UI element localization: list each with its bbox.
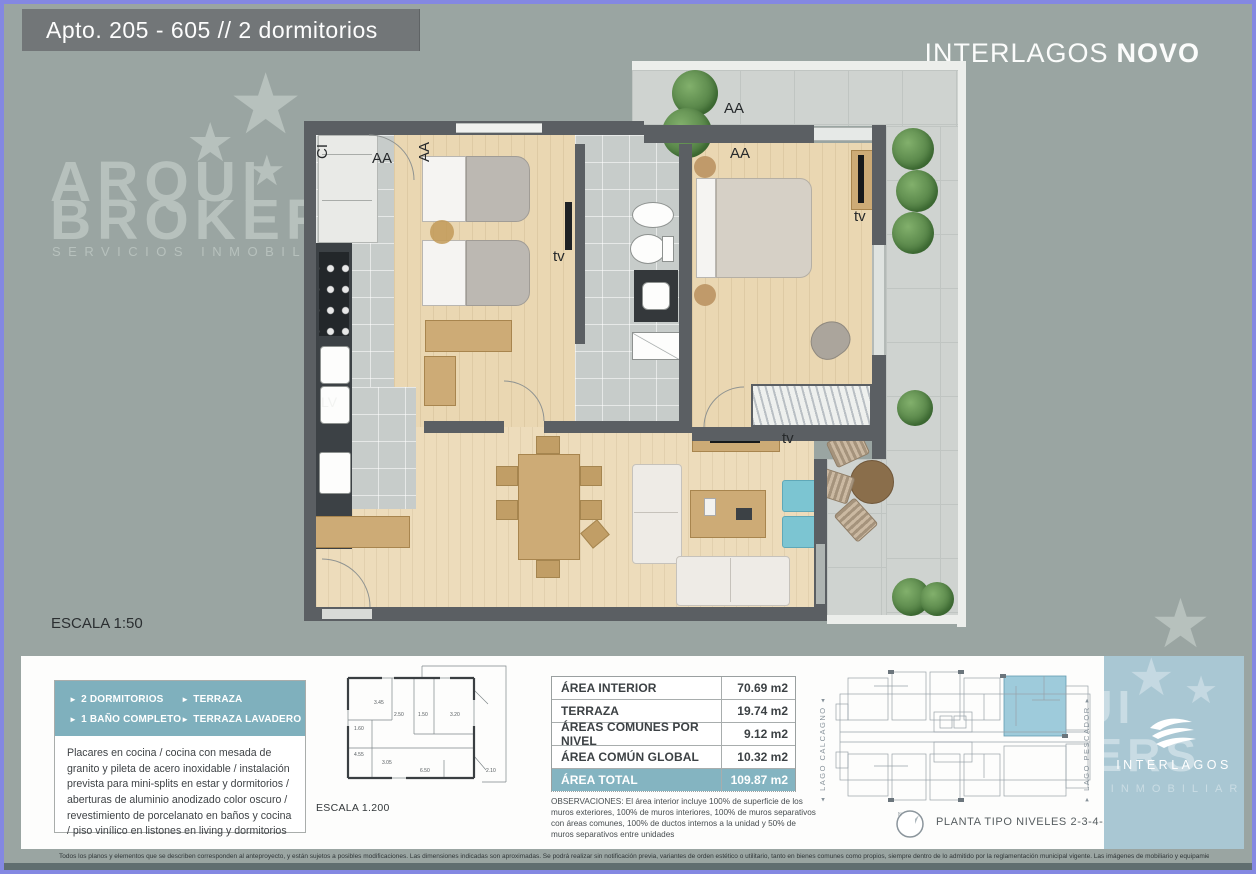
feature-label: 2 DORMITORIOS xyxy=(81,694,163,705)
table-row: ÁREA COMÚN GLOBAL 10.32 m2 xyxy=(552,746,795,769)
arrow-bullet-icon: ► xyxy=(181,715,189,724)
bottom-bar xyxy=(4,863,1252,870)
dim-label: 3.05 xyxy=(382,760,392,766)
arrow-icon: ▼ xyxy=(1084,696,1090,704)
lago-label-text: LAGO CALCAGNO xyxy=(818,707,827,792)
apartment-title-bar: Apto. 205 - 605 // 2 dormitorios xyxy=(22,9,420,51)
label-tv: tv xyxy=(782,430,794,447)
features-header: ►2 DORMITORIOS ►TERRAZA ►1 BAÑO COMPLETO… xyxy=(55,681,305,736)
feature-label: TERRAZA LAVADERO xyxy=(193,714,301,725)
table-row: ÁREA INTERIOR 70.69 m2 xyxy=(552,677,795,700)
site-plan-caption: PLANTA TIPO NIVELES 2-3-4-5-6 xyxy=(936,816,1121,828)
star-icon: ★ xyxy=(1184,672,1218,710)
area-label: ÁREA INTERIOR xyxy=(552,681,721,695)
site-plan xyxy=(834,666,1096,806)
dim-label: 1.60 xyxy=(354,726,364,732)
observations-text: OBSERVACIONES: El área interior incluye … xyxy=(551,796,817,840)
dim-label: 2.10 xyxy=(486,768,496,774)
area-table: ÁREA INTERIOR 70.69 m2 TERRAZA 19.74 m2 … xyxy=(551,676,796,792)
plant xyxy=(892,212,934,254)
plant xyxy=(892,128,934,170)
label-lv: LV xyxy=(321,394,337,410)
label-aa: AA xyxy=(416,142,433,162)
main-plan-scale: ESCALA 1:50 xyxy=(51,615,143,632)
feature-item: ►TERRAZA LAVADERO xyxy=(181,714,301,725)
arrow-icon: ▲ xyxy=(820,795,826,803)
label-tv: tv xyxy=(854,208,866,225)
interlagos-logo-text: INTERLAGOS xyxy=(1104,758,1244,772)
arrow-icon: ▼ xyxy=(1084,795,1090,803)
area-total-label: ÁREA TOTAL xyxy=(552,773,721,787)
arrow-bullet-icon: ► xyxy=(69,715,77,724)
dim-label: 3.45 xyxy=(374,700,384,706)
area-total-value: 109.87 m2 xyxy=(721,769,795,791)
star-icon: ★ xyxy=(1150,590,1211,658)
area-label: ÁREA COMÚN GLOBAL xyxy=(552,750,721,764)
brochure-page: Apto. 205 - 605 // 2 dormitorios INTERLA… xyxy=(0,0,1256,874)
label-aa: AA xyxy=(372,150,392,167)
interlagos-wave-icon xyxy=(1146,714,1198,752)
label-aa: AA xyxy=(724,100,744,117)
area-label: ÁREAS COMUNES POR NIVEL xyxy=(552,720,721,748)
area-value: 9.12 m2 xyxy=(721,723,795,745)
dim-label: 1.50 xyxy=(418,712,428,718)
interlagos-block: ARQUI BROKERS SERVICIOS INMOBILIARIOS ★ … xyxy=(1104,656,1244,849)
lago-calcagno-label: ▲ LAGO CALCAGNO ▲ xyxy=(818,694,827,804)
mini-plan-scale: ESCALA 1.200 xyxy=(316,802,390,814)
star-icon: ★ xyxy=(228,62,303,146)
terrace-parapet-top xyxy=(632,61,966,70)
door-arcs xyxy=(304,121,886,621)
features-description: Placares en cocina / cocina con mesada d… xyxy=(55,736,305,850)
lago-pescador-label: ▼ LAGO PESCADOR ▼ xyxy=(1082,694,1091,804)
mini-plan: 3.45 2.50 1.50 3.20 1.60 4.55 3.05 6.50 … xyxy=(322,660,514,800)
label-tv: tv xyxy=(553,248,565,265)
svg-text:N: N xyxy=(898,812,902,818)
star-icon: ★ xyxy=(1128,656,1175,704)
dim-label: 3.20 xyxy=(450,712,460,718)
table-row: ÁREAS COMUNES POR NIVEL 9.12 m2 xyxy=(552,723,795,746)
terrace-parapet-right xyxy=(957,61,966,627)
table-total-row: ÁREA TOTAL 109.87 m2 xyxy=(552,769,795,791)
features-box: ►2 DORMITORIOS ►TERRAZA ►1 BAÑO COMPLETO… xyxy=(54,680,306,833)
arrow-icon: ▲ xyxy=(820,696,826,704)
feature-item: ►TERRAZA xyxy=(181,694,301,705)
brand-suffix: NOVO xyxy=(1116,38,1200,68)
feature-item: ►2 DORMITORIOS xyxy=(69,694,181,705)
area-value: 19.74 m2 xyxy=(721,700,795,722)
area-label: TERRAZA xyxy=(552,704,721,718)
compass-icon: N xyxy=(894,808,926,840)
dim-label: 4.55 xyxy=(354,752,364,758)
label-aa: AA xyxy=(730,145,750,162)
lago-label-text: LAGO PESCADOR xyxy=(1082,707,1091,792)
feature-label: TERRAZA xyxy=(193,694,242,705)
plant xyxy=(920,582,954,616)
plant xyxy=(896,170,938,212)
disclaimer-text: Todos los planos y elementos que se desc… xyxy=(59,853,1209,860)
watermark-clipped-tagline: SERVICIOS INMOBILIARIOS xyxy=(1104,784,1244,795)
label-ci: CI xyxy=(314,144,331,159)
highlighted-unit xyxy=(1004,676,1066,736)
dim-label: 6.50 xyxy=(420,768,430,774)
arrow-bullet-icon: ► xyxy=(69,695,77,704)
feature-item: ►1 BAÑO COMPLETO xyxy=(69,714,181,725)
apartment-title: Apto. 205 - 605 // 2 dormitorios xyxy=(46,17,378,44)
arrow-bullet-icon: ► xyxy=(181,695,189,704)
dim-label: 2.50 xyxy=(394,712,404,718)
plant xyxy=(897,390,933,426)
area-value: 10.32 m2 xyxy=(721,746,795,768)
feature-label: 1 BAÑO COMPLETO xyxy=(81,714,181,725)
area-value: 70.69 m2 xyxy=(721,677,795,699)
